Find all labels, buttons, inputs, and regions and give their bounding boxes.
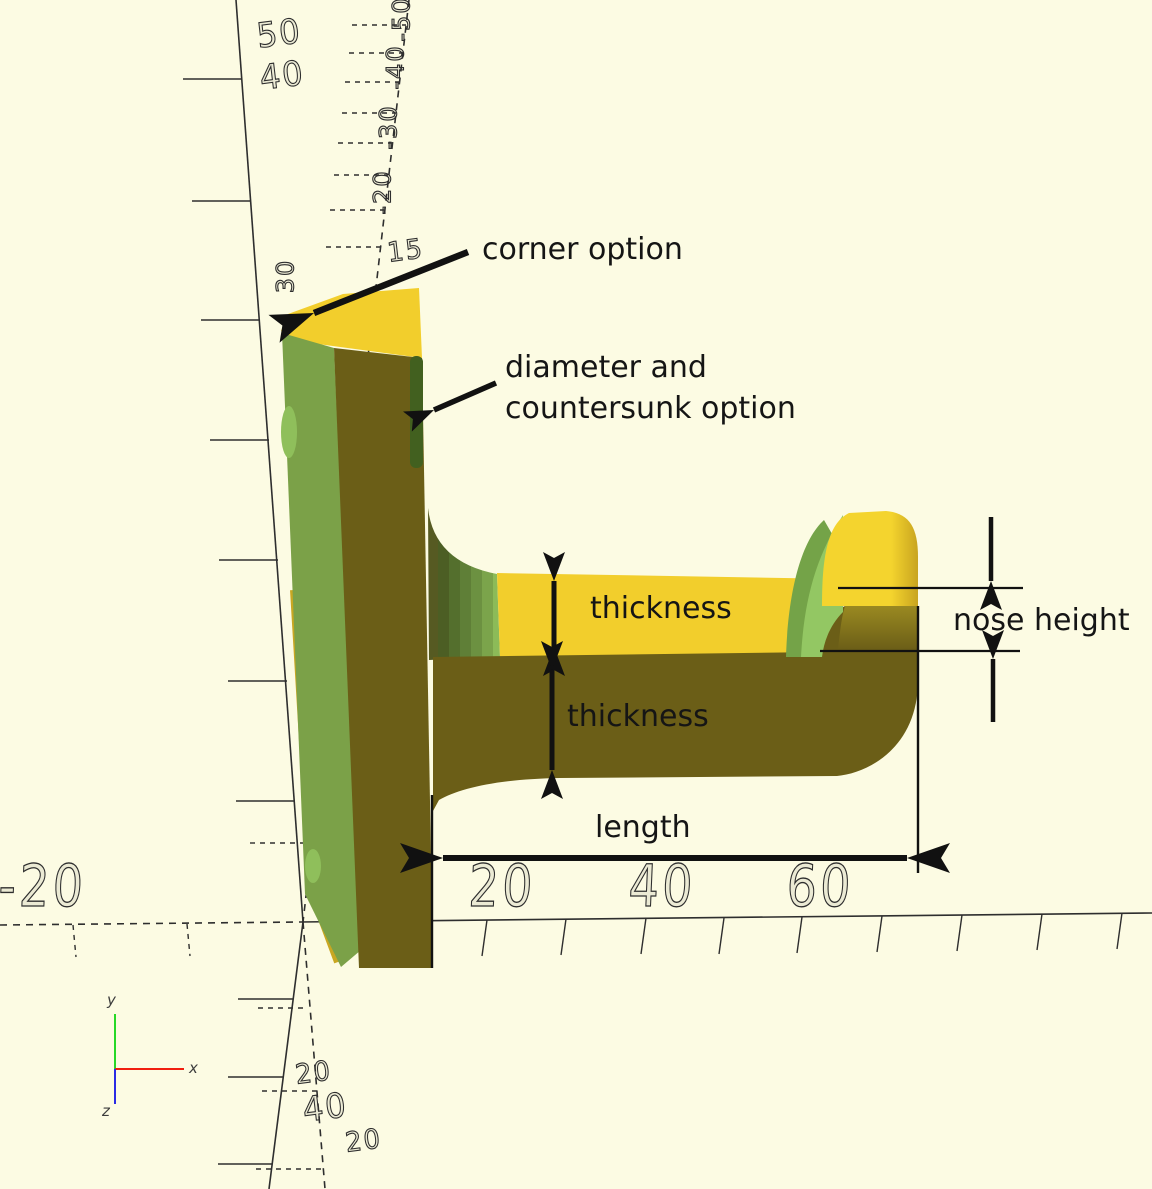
countersunk-label: diameter and countersunk option — [505, 348, 796, 429]
gizmo-z-label: z — [102, 1102, 110, 1120]
thickness-top-label: thickness — [590, 589, 732, 630]
viewport-3d[interactable]: -20 20 40 60 50 40 30 -50 -40 -30 -20 15… — [0, 0, 1152, 1189]
gizmo-x-label: x — [189, 1059, 198, 1077]
annotation-layer: corner option diameter and countersunk o… — [0, 0, 1152, 1189]
gizmo-y-label: y — [107, 991, 116, 1009]
length-label: length — [595, 808, 691, 849]
nose-height-label: nose height — [953, 601, 1130, 642]
thickness-bottom-label: thickness — [567, 697, 709, 738]
corner-option-label: corner option — [482, 230, 683, 271]
